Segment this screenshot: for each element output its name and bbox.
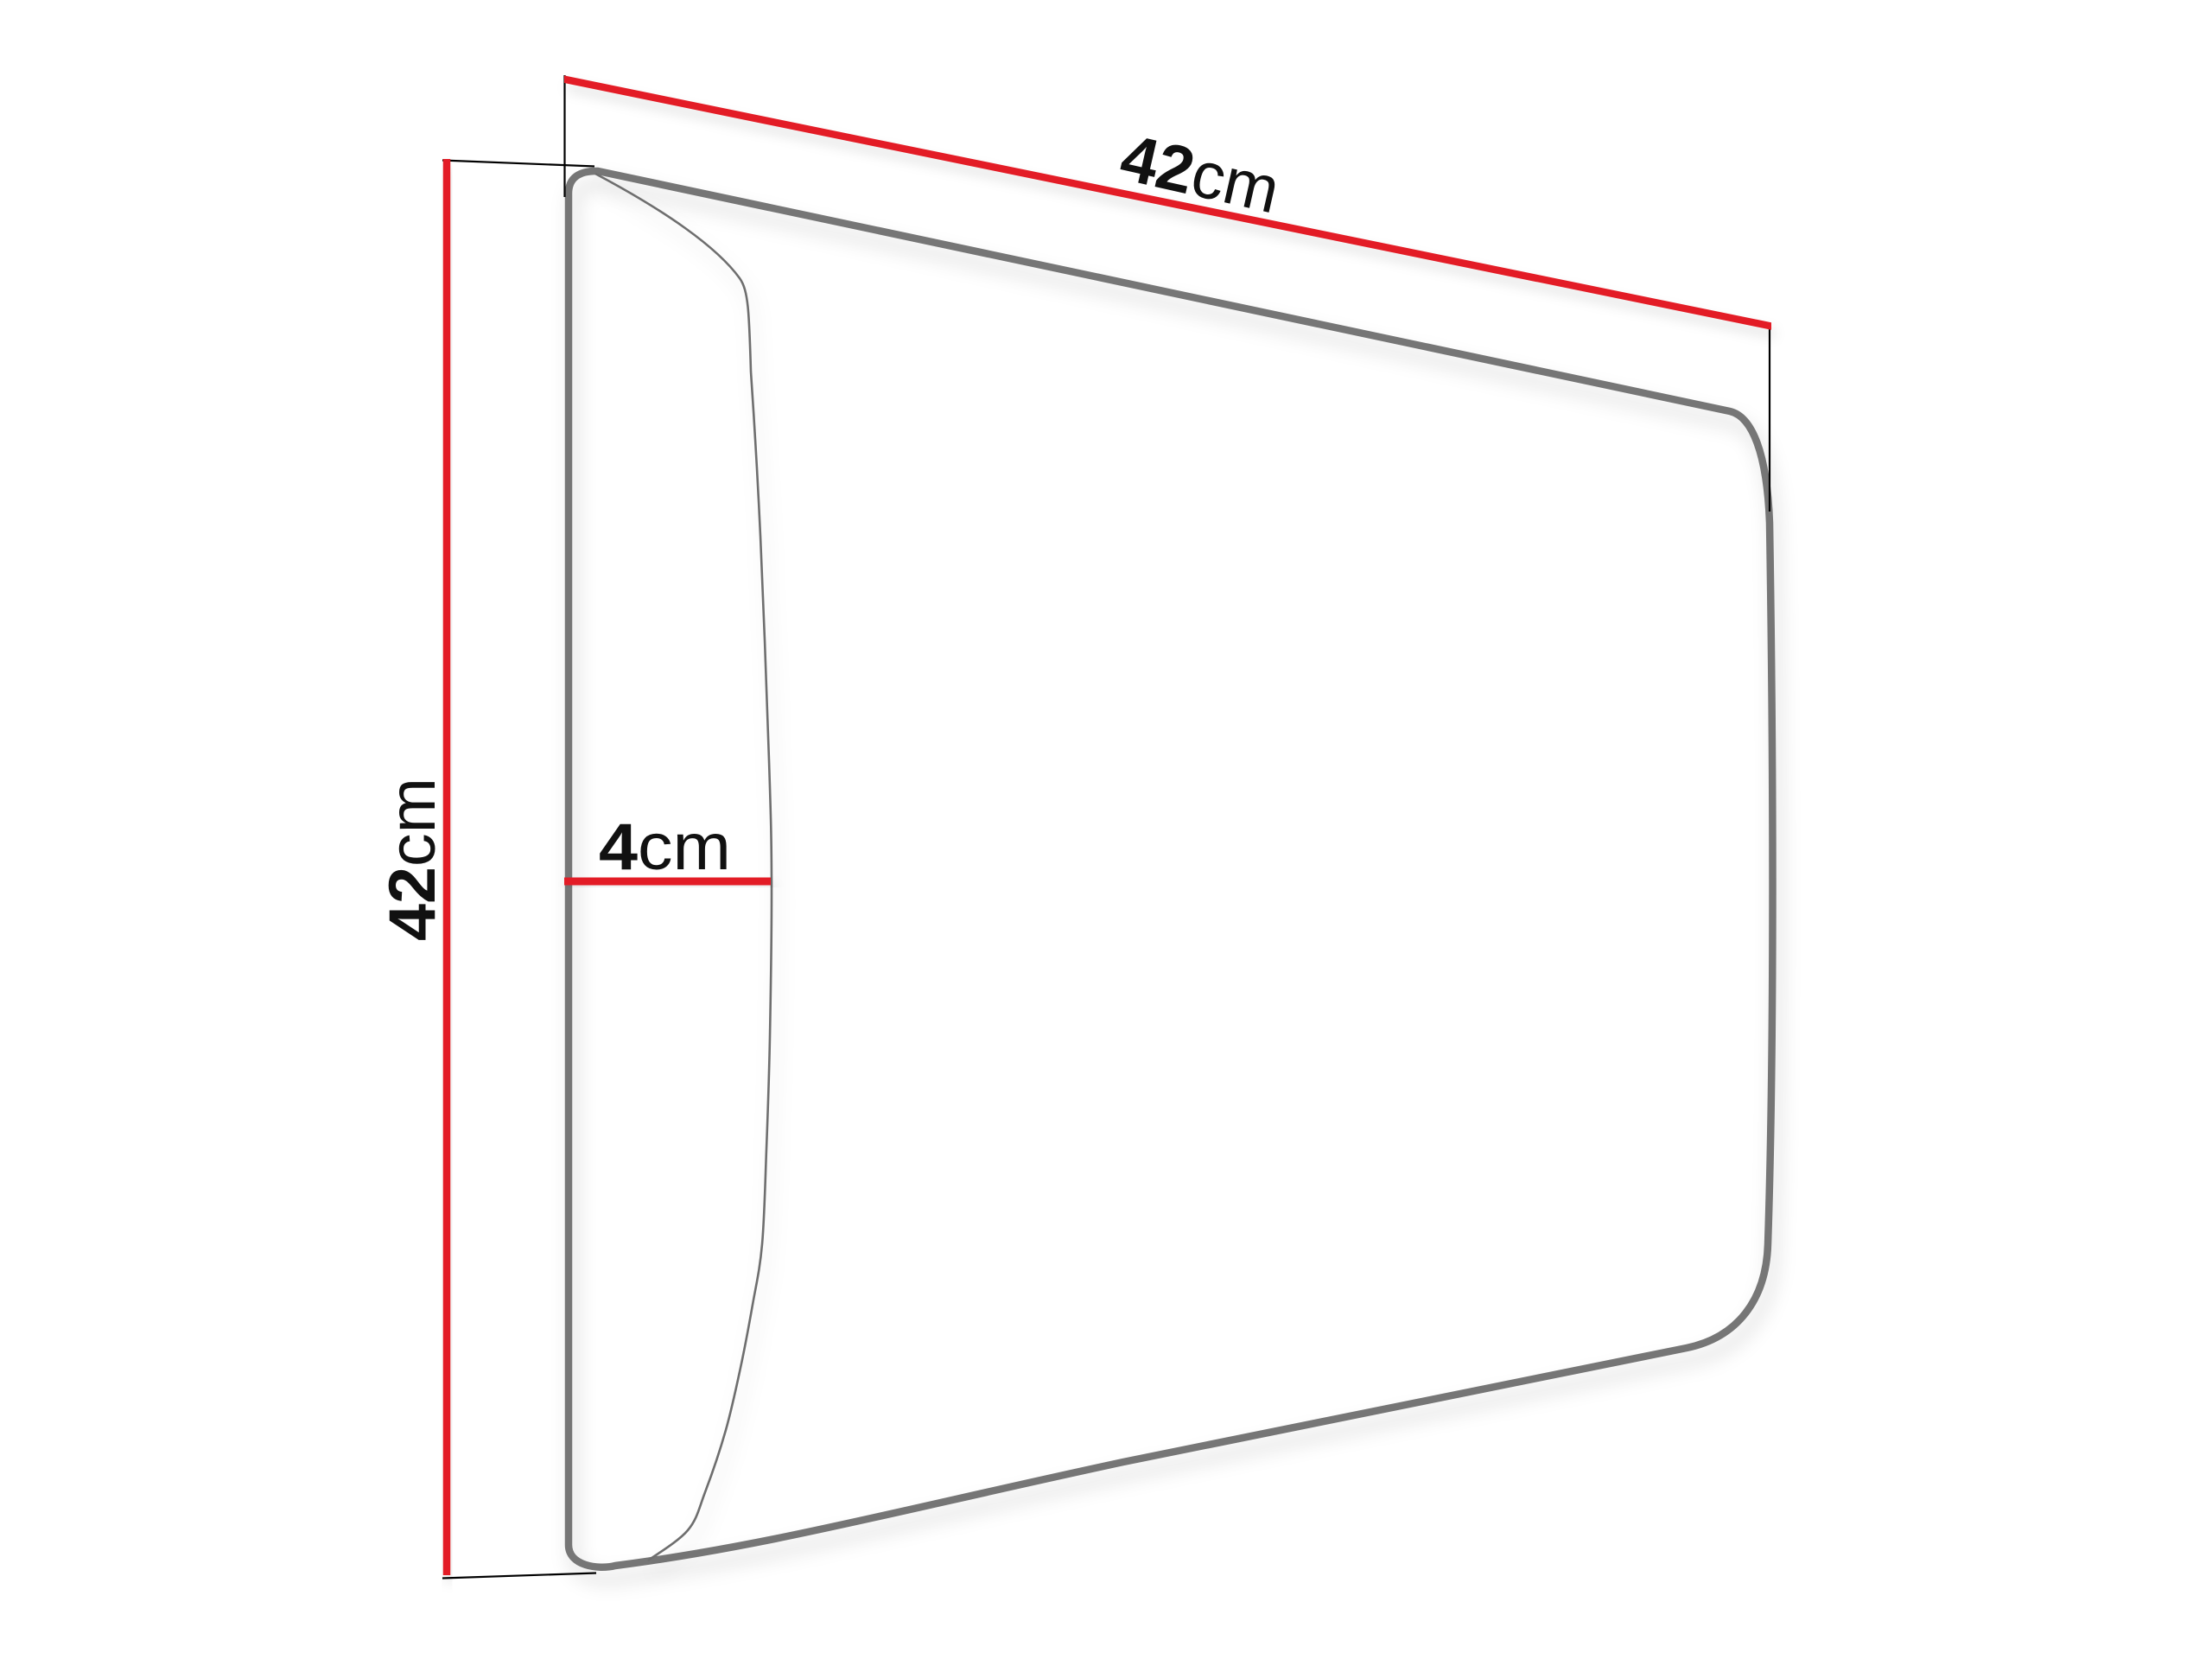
svg-text:42cm: 42cm <box>376 778 449 941</box>
svg-text:4cm: 4cm <box>599 810 731 884</box>
